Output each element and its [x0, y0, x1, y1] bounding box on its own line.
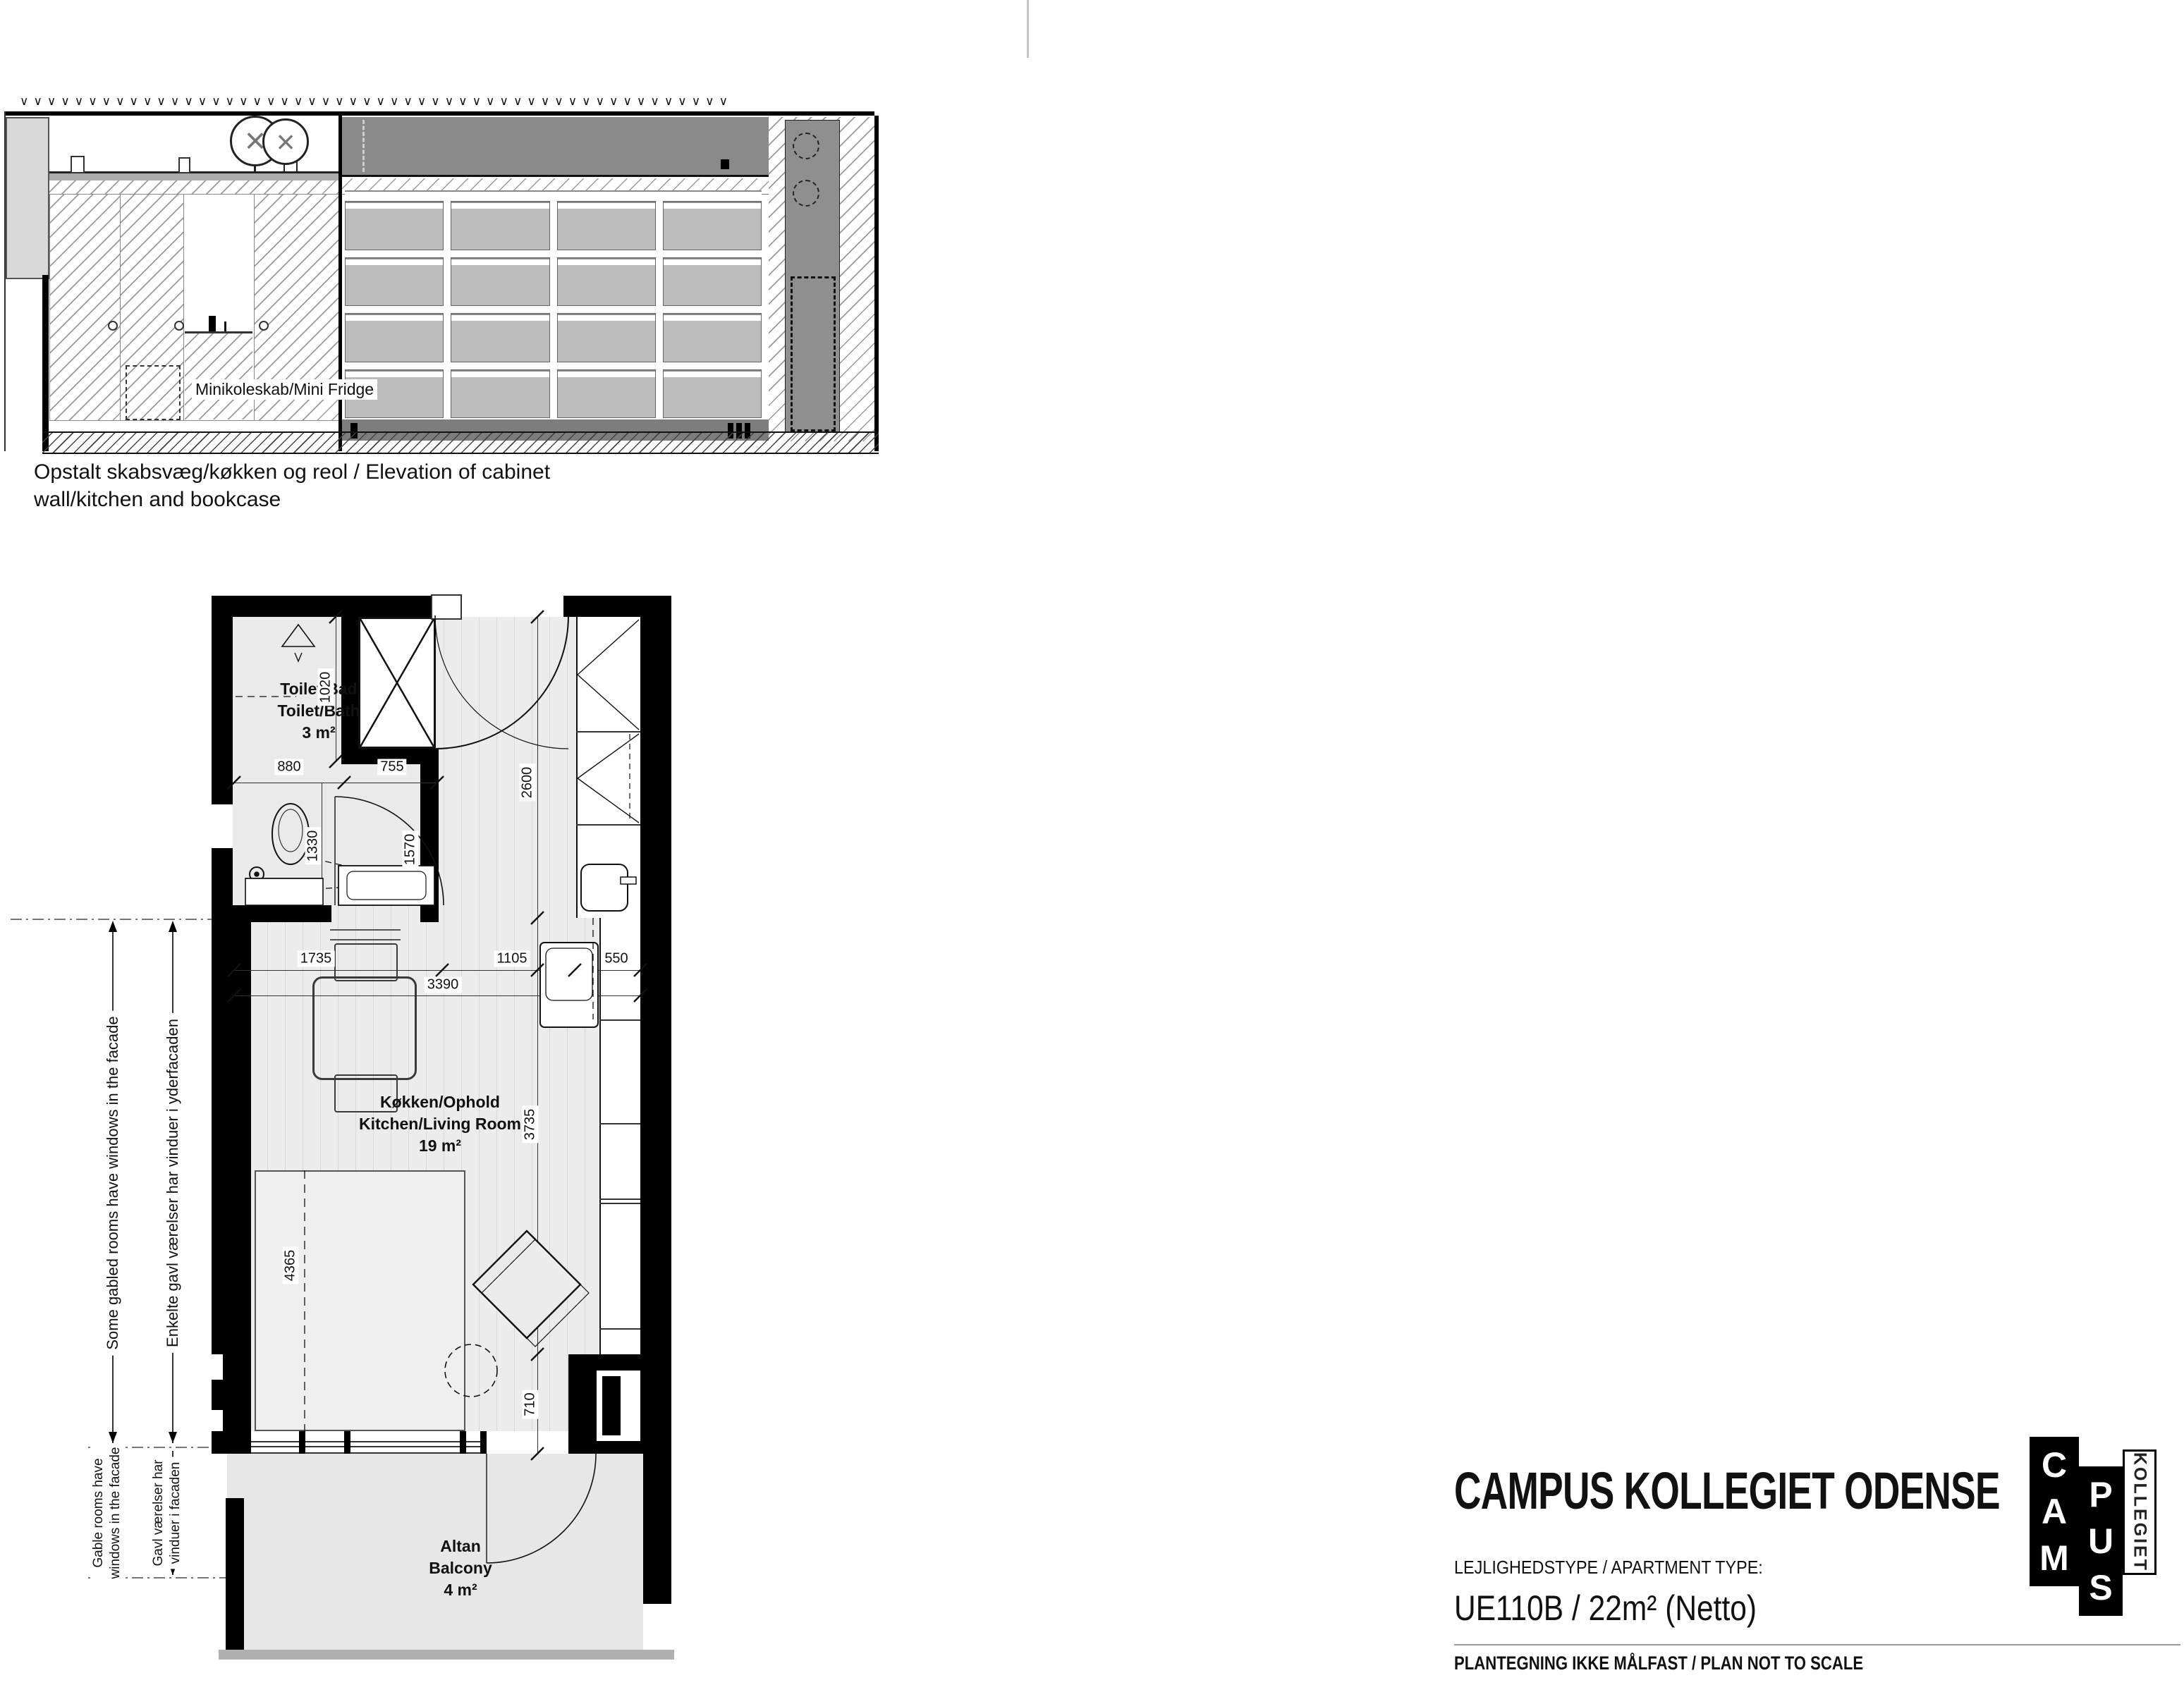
dim-550: 550: [602, 951, 630, 967]
annotation-upper-da: Enkelte gavl værelser har vinduer i yder…: [164, 1013, 182, 1353]
room-label-balcony: Altan Balcony 4 m²: [429, 1535, 492, 1601]
logo-bar-cam: CAM: [2030, 1437, 2079, 1586]
dim-1330: 1330: [305, 828, 322, 865]
drawing-sheet: ∨∨∨∨∨∨∨∨∨∨∨∨∨∨∨∨∨∨∨∨∨∨∨∨∨∨∨∨∨∨∨∨∨∨∨∨∨∨∨∨…: [0, 0, 2184, 1692]
room-area: 3 m²: [277, 722, 360, 744]
arrowhead-icon: [109, 1432, 117, 1443]
dim-755: 755: [377, 759, 406, 775]
logo-word-cam: CAM: [2030, 1442, 2079, 1581]
dim-1735: 1735: [298, 951, 335, 967]
room-label-kitchen: Køkken/Ophold Kitchen/Living Room 19 m²: [359, 1091, 521, 1157]
dim-1020: 1020: [318, 669, 334, 706]
room-area: 4 m²: [429, 1579, 492, 1601]
dim-3390: 3390: [425, 977, 462, 993]
dim-2600: 2600: [520, 764, 536, 802]
logo-word-kollegiet: KOLLEGIET: [2130, 1452, 2150, 1572]
annotation-upper-en: Some gabled rooms have windows in the fa…: [104, 1010, 122, 1355]
campus-kollegiet-logo: CAM PUS KOLLEGIET: [2030, 1437, 2154, 1617]
arrowhead-icon: [109, 921, 117, 932]
dim-880: 880: [274, 759, 303, 775]
logo-strip-kollegiet: KOLLEGIET: [2123, 1449, 2156, 1575]
dim-1570: 1570: [403, 831, 419, 869]
dim-710: 710: [523, 1390, 539, 1418]
arrowhead-icon: [169, 1432, 177, 1443]
annotation-lower-da: Gavl værelser har vinduer i facaden: [150, 1457, 184, 1569]
logo-word-pus: PUS: [2079, 1471, 2123, 1611]
annotation-lower-en: Gable rooms have windows in the facade: [90, 1445, 124, 1582]
dim-1105: 1105: [494, 951, 530, 967]
elevation-caption-line1: Opstalt skabsvæg/køkken og reol / Elevat…: [34, 458, 550, 486]
dim-4365: 4365: [283, 1247, 299, 1285]
dim-3735: 3735: [523, 1106, 539, 1144]
fridge-label: Minikoleskab/Mini Fridge: [192, 379, 377, 400]
plan-linework: [0, 0, 2184, 1692]
elevation-caption: Opstalt skabsvæg/køkken og reol / Elevat…: [34, 458, 550, 513]
logo-bar-pus: PUS: [2079, 1466, 2123, 1616]
elevation-caption-line2: wall/kitchen and bookcase: [34, 486, 550, 513]
room-area: 19 m²: [359, 1135, 521, 1157]
arrowhead-icon: [169, 921, 177, 932]
